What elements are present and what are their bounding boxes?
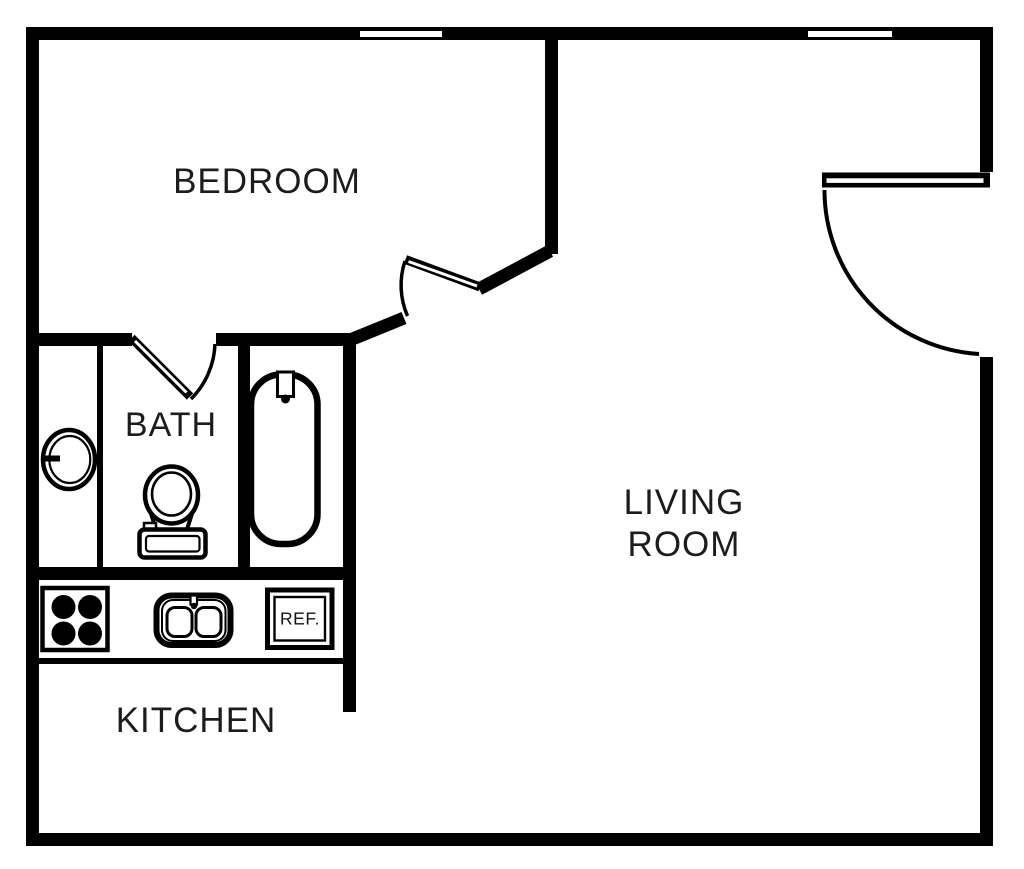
- bedroom-door-leaf-inner: [409, 262, 478, 287]
- bath-label: BATH: [125, 404, 217, 446]
- bedroom-bottom-wall-left: [26, 333, 132, 346]
- toilet: [140, 467, 206, 558]
- bedroom-bottom-wall-right: [216, 333, 356, 346]
- wall-right-upper: [980, 27, 993, 172]
- entry-door-leaf-inner: [827, 178, 984, 183]
- bath-door-swing-arc: [191, 344, 215, 399]
- kitchen-counter-line: [33, 658, 346, 664]
- kitchen-double-sink: [157, 596, 231, 646]
- bedroom-door: [401, 260, 480, 317]
- wall-right-lower: [980, 357, 993, 846]
- sink-faucet-dot: [191, 603, 197, 609]
- kitchen-top-wall: [26, 567, 356, 580]
- bathtub-faucet: [278, 372, 294, 397]
- bedroom-door-swing-arc: [401, 261, 407, 316]
- bedroom-diagonal-wall-lower: [350, 318, 404, 340]
- toilet-tank-outer: [140, 530, 206, 558]
- stove-burner: [78, 595, 102, 619]
- bedroom-right-wall: [545, 27, 558, 254]
- bathtub: [251, 372, 318, 544]
- wall-bottom: [26, 833, 993, 846]
- bathtub-drain-dot: [281, 395, 290, 404]
- vanity-divider-wall: [97, 346, 103, 570]
- wall-left: [26, 27, 39, 846]
- stove-burner: [78, 622, 102, 646]
- vanity-basin: [43, 430, 95, 489]
- refrigerator-label: REF.: [280, 609, 320, 630]
- bath-door: [132, 338, 216, 399]
- bedroom-window: [360, 31, 442, 37]
- entry-door: [822, 173, 990, 355]
- stove-burner: [52, 622, 76, 646]
- stove-cooktop: [43, 588, 108, 650]
- vanity-faucet: [43, 456, 60, 462]
- bedroom-label: BEDROOM: [173, 161, 361, 203]
- bedroom-diagonal-wall-upper: [479, 251, 550, 289]
- entry-door-swing-arc: [824, 190, 979, 354]
- floor-plan: BEDROOM BATH LIVING ROOM KITCHEN REF.: [0, 0, 1024, 869]
- living-room-label: LIVING ROOM: [624, 482, 745, 566]
- bath-door-leaf-inner: [135, 341, 187, 393]
- bath-kitchen-right-wall: [343, 333, 356, 712]
- living-room-window: [808, 31, 892, 37]
- kitchen-label: KITCHEN: [116, 700, 277, 742]
- stove-burner: [52, 595, 76, 619]
